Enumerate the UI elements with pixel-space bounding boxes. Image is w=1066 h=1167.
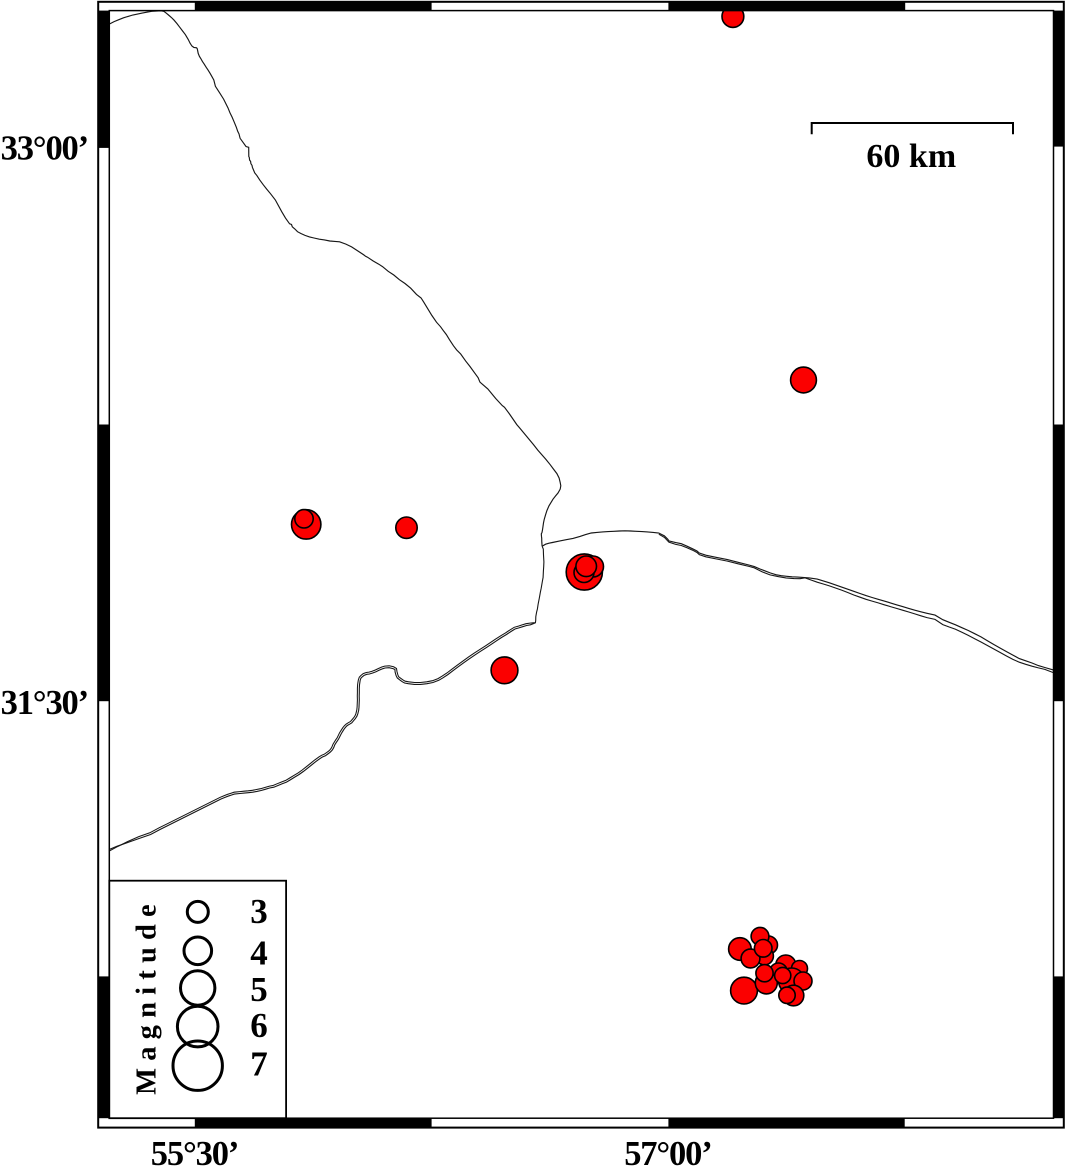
svg-text:33°00’: 33°00’ (1, 130, 88, 168)
svg-text:4: 4 (250, 933, 268, 972)
svg-text:31°30’: 31°30’ (1, 684, 88, 722)
svg-text:7: 7 (250, 1045, 268, 1084)
svg-text:55°30’: 55°30’ (151, 1135, 238, 1167)
svg-text:60 km: 60 km (866, 138, 956, 175)
svg-text:5: 5 (250, 970, 268, 1009)
svg-text:57°00’: 57°00’ (624, 1135, 711, 1167)
svg-text:6: 6 (250, 1006, 268, 1045)
svg-text:3: 3 (250, 892, 268, 931)
svg-text:Magnitude: Magnitude (132, 897, 163, 1095)
